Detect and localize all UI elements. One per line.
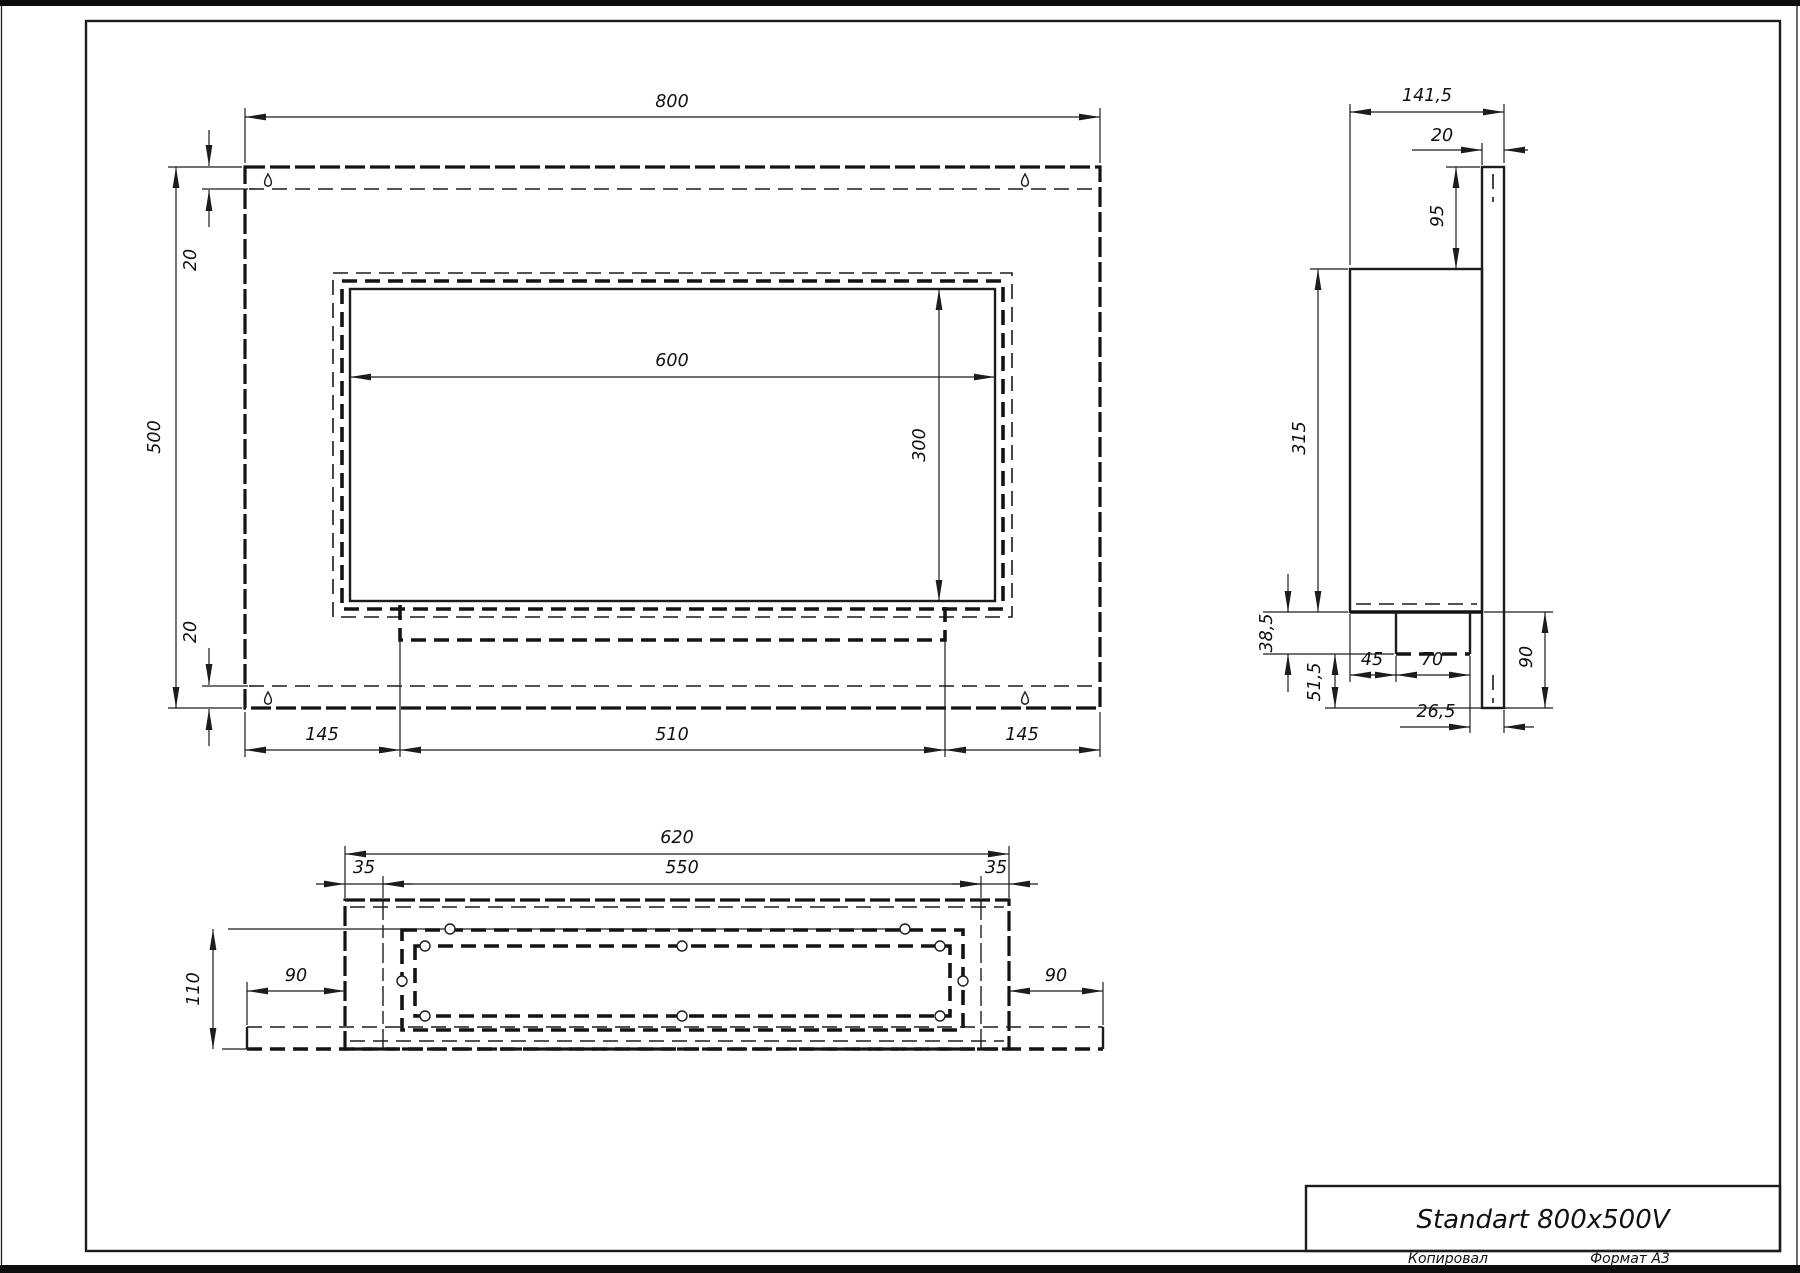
dim-tray-depth: 38,5 — [1257, 614, 1277, 653]
title-block: Standart 800x500V — [1306, 1186, 1780, 1251]
dim-margin-right: 145 — [1005, 725, 1038, 745]
dim-front-top-inset: 20 — [181, 249, 201, 271]
bottom-opening-inner-frame — [415, 946, 950, 1016]
screw-holes — [397, 924, 968, 1021]
dim-rear-offset: 26,5 — [1417, 702, 1456, 722]
opening-window — [350, 289, 995, 601]
dim-opening-width: 600 — [655, 351, 688, 371]
dim-panel-thickness: 20 — [1431, 126, 1453, 146]
side-dimension-lines — [1263, 104, 1553, 733]
front-view: 800 500 20 20 600 300 145 510 145 — [145, 92, 1100, 757]
keyhole-icon — [1022, 174, 1029, 186]
front-dimension-lines — [168, 108, 1100, 757]
dim-bottom-body-width: 620 — [660, 828, 693, 848]
dim-panel-below-body: 90 — [1517, 646, 1537, 668]
sheet-frame — [0, 0, 1800, 1273]
dim-bottom-opening-width: 550 — [665, 858, 698, 878]
drawing-sheet: 800 500 20 20 600 300 145 510 145 — [0, 0, 1800, 1273]
dim-tray-width: 510 — [655, 725, 688, 745]
dim-body-height: 315 — [1290, 421, 1310, 454]
dim-tray-to-bottom: 51,5 — [1305, 663, 1325, 702]
dim-front-width: 800 — [655, 92, 688, 112]
format-label: Формат A3 — [1590, 1251, 1670, 1267]
scan-edge-top — [0, 0, 1800, 6]
keyhole-icon — [265, 692, 272, 704]
dim-tray-setback: 45 — [1361, 650, 1383, 670]
dim-bottom-depth: 110 — [184, 972, 204, 1005]
dim-side-depth: 141,5 — [1402, 86, 1452, 106]
dim-body-top-offset: 95 — [1428, 205, 1448, 227]
front-panel-outline — [245, 167, 1100, 708]
dim-opening-height: 300 — [910, 428, 930, 461]
footer-labels: Копировал Формат A3 — [1408, 1251, 1670, 1267]
scan-edge-bottom — [0, 1265, 1800, 1273]
side-body — [1350, 269, 1482, 612]
drawing-title: Standart 800x500V — [1416, 1205, 1671, 1235]
bottom-dimension-texts: 620 35 550 35 110 90 90 — [184, 828, 1067, 1006]
copied-label: Копировал — [1408, 1251, 1488, 1267]
dim-side-inset-right: 35 — [985, 858, 1007, 878]
side-back-panel — [1482, 167, 1504, 708]
dim-flange-left: 90 — [285, 966, 307, 986]
keyhole-icon — [265, 174, 272, 186]
dim-flange-right: 90 — [1045, 966, 1067, 986]
dim-front-bottom-inset: 20 — [181, 621, 201, 643]
side-view: 141,5 20 95 315 38,5 51,5 45 70 90 26,5 — [1257, 86, 1553, 733]
opening-mid-frame — [342, 281, 1003, 609]
keyhole-icon — [1022, 692, 1029, 704]
dim-side-tray-width: 70 — [1421, 650, 1443, 670]
dim-side-inset-left: 35 — [353, 858, 375, 878]
drawing-border — [86, 21, 1780, 1251]
dim-front-height: 500 — [145, 420, 165, 453]
drawing-canvas: 800 500 20 20 600 300 145 510 145 — [0, 0, 1800, 1273]
front-dimension-texts: 800 500 20 20 600 300 145 510 145 — [145, 92, 1039, 745]
dim-margin-left: 145 — [305, 725, 338, 745]
bottom-view: 620 35 550 35 110 90 90 — [184, 828, 1103, 1049]
